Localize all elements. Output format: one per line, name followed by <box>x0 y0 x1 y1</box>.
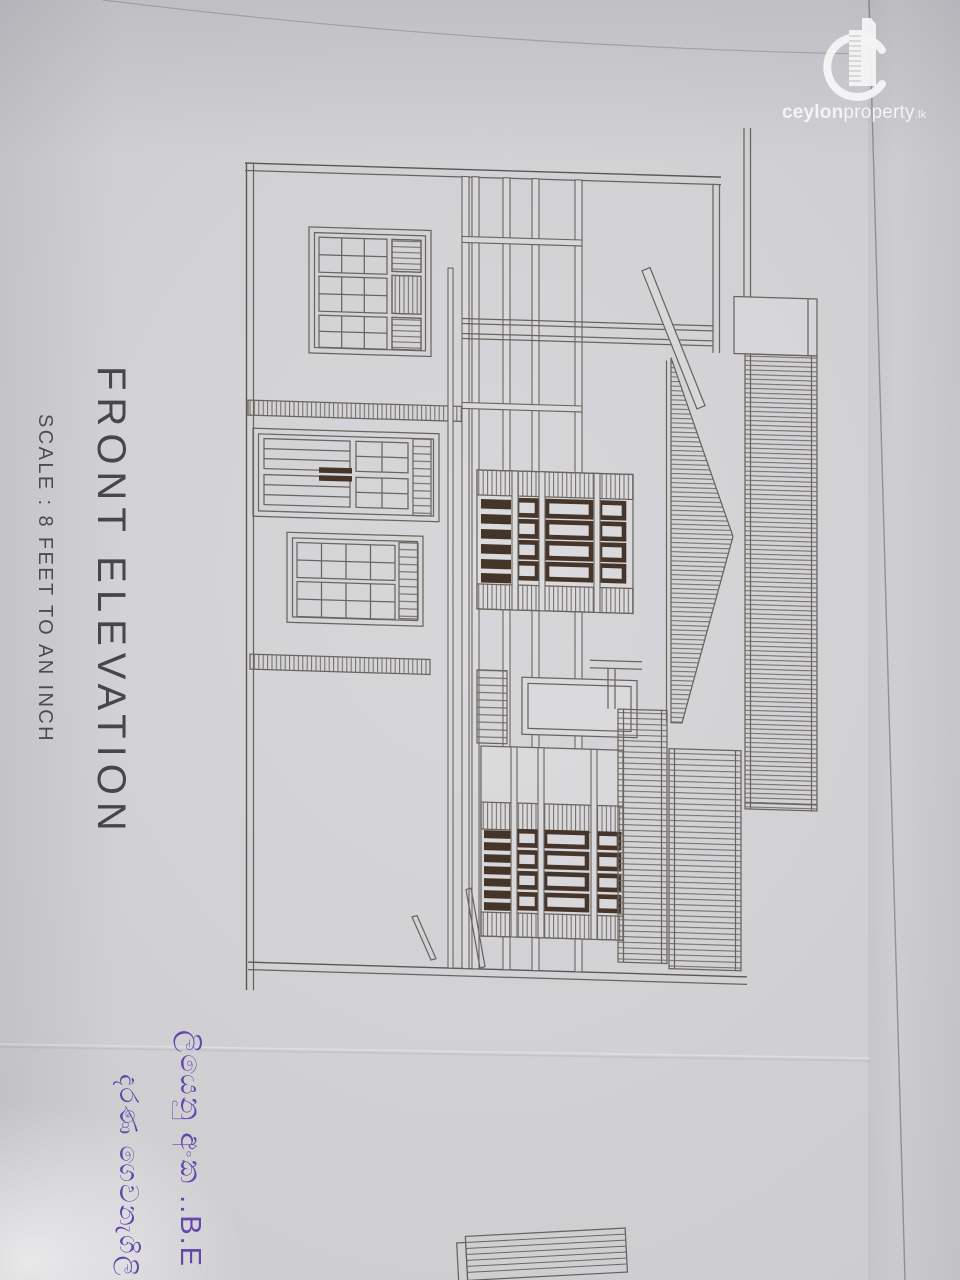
blueprint-photo: ceylonproperty.lk FRONT ELEVATION SCALE … <box>0 0 960 1280</box>
photo-vignette <box>0 0 960 1280</box>
